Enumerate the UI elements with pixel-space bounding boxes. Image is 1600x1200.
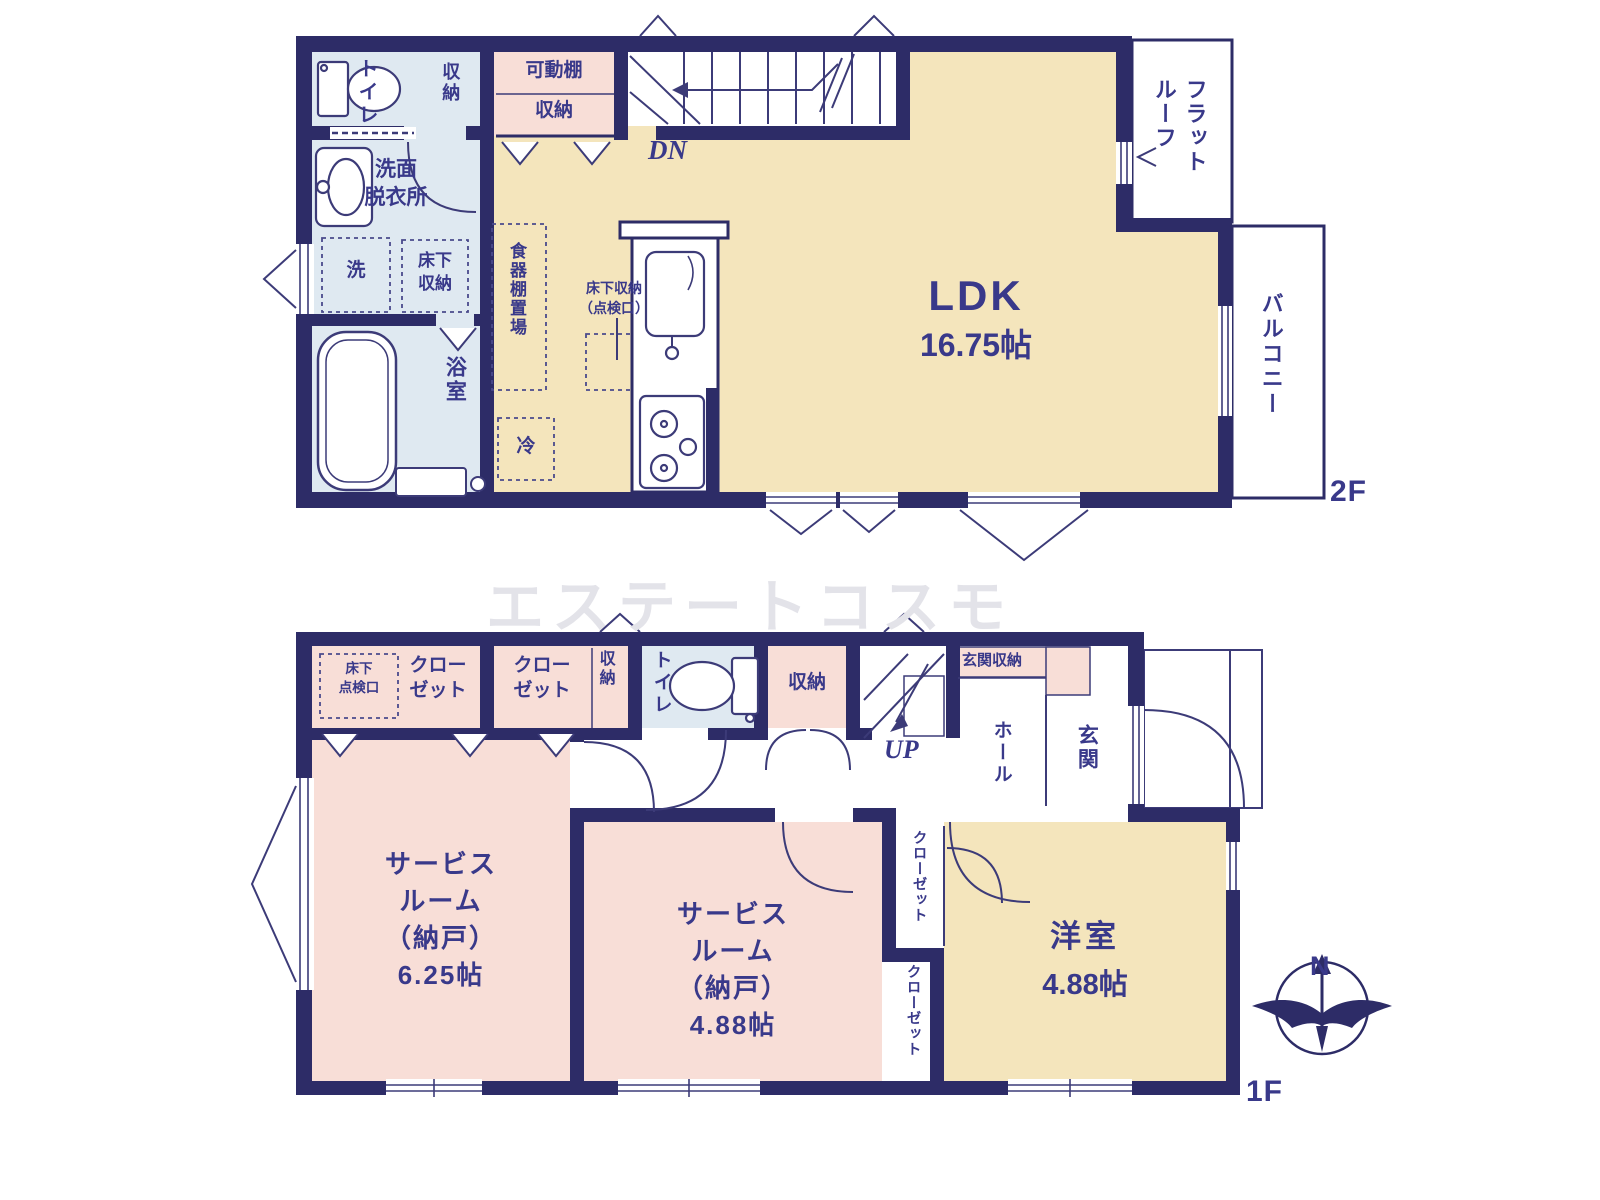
label-2f-underfloor-storage: 床下 収納: [402, 250, 468, 296]
label-2f-tag: 2F: [1330, 472, 1367, 513]
label-1f-service-room-1: サービス ルーム （納戸） 6.25帖: [312, 846, 570, 994]
label-1f-service-room-2: サービス ルーム （納戸） 4.88帖: [584, 896, 882, 1044]
label-2f-dish-shelf: 食器棚置場: [504, 242, 527, 392]
label-2f-balcony: バルコニー: [1256, 292, 1286, 417]
label-2f-washer: 洗: [322, 258, 390, 284]
label-2f-toilet: トイレ: [352, 58, 379, 127]
label-2f-underfloor-inspection: 床下収納 （点検口）: [552, 278, 676, 319]
label-1f-western-room: 洋室: [944, 916, 1226, 958]
label-1f-storage: 収納: [768, 670, 846, 696]
label-1f-stairs-up: UP: [884, 732, 919, 767]
label-1f-toilet: トイレ: [648, 650, 674, 716]
label-2f-toilet-storage: 収納: [438, 62, 462, 104]
label-1f-closet-a: クロー ゼット: [394, 654, 482, 703]
label-1f-closet-v1: クローゼット: [908, 830, 928, 923]
label-2f-bathroom: 浴室: [440, 356, 468, 404]
floor-plan: エステートコスモ トイレ 収納 可動棚 収納 DN 洗面 脱衣所 洗 床下 収納…: [0, 0, 1600, 1200]
label-1f-tag: 1F: [1246, 1072, 1283, 1113]
label-1f-closet-b: クロー ゼット: [496, 654, 588, 703]
label-1f-entrance: 玄関: [1072, 724, 1100, 772]
label-2f-ldk-size: 16.75帖: [856, 324, 1096, 367]
compass-north-label: N: [1310, 948, 1330, 984]
label-2f-stairs-dn: DN: [648, 132, 687, 168]
label-2f-washroom: 洗面 脱衣所: [312, 156, 480, 213]
watermark: エステートコスモ: [420, 560, 1080, 644]
label-1f-underfloor-inspection: 床下 点検口: [320, 660, 398, 698]
label-1f-hall: ホール: [988, 720, 1014, 786]
label-1f-storage-small: 収納: [594, 650, 616, 688]
label-2f-flat-roof: フラットルーフ: [1148, 78, 1210, 190]
label-2f-shelf-storage: 収納: [494, 98, 614, 124]
label-2f-movable-shelf: 可動棚: [494, 58, 614, 84]
label-2f-ldk: LDK: [876, 268, 1076, 325]
label-2f-fridge: 冷: [498, 434, 554, 460]
label-1f-closet-v2: クローゼット: [902, 964, 922, 1057]
label-1f-western-room-size: 4.88帖: [944, 966, 1226, 1005]
label-1f-entrance-storage: 玄関収納: [962, 651, 1022, 671]
